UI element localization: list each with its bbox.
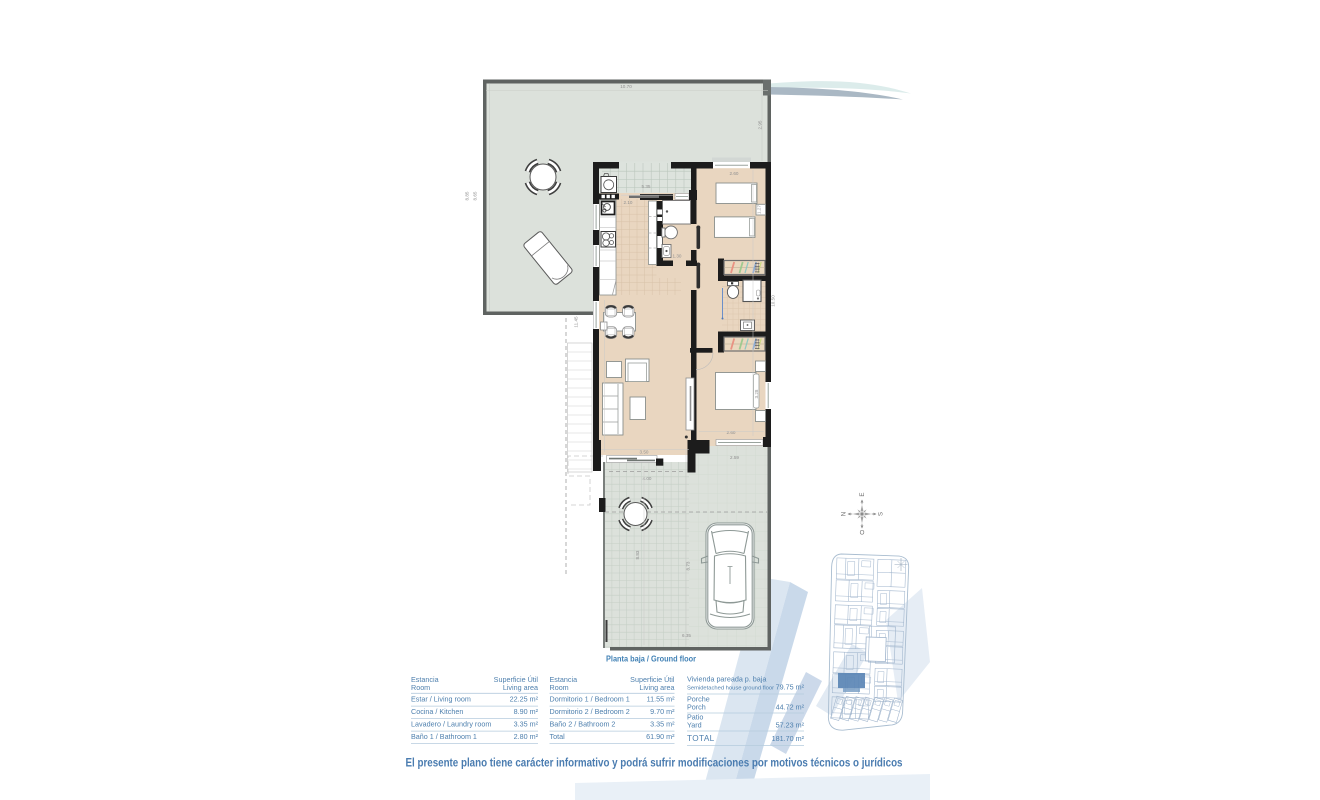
svg-text:8.90 m²: 8.90 m²: [514, 707, 539, 716]
svg-text:2.95: 2.95: [758, 120, 763, 129]
svg-text:181.70 m²: 181.70 m²: [772, 734, 805, 743]
svg-text:2.10: 2.10: [624, 200, 633, 205]
svg-text:8.83: 8.83: [635, 550, 640, 559]
svg-text:Dormitorio 2 / Bedroom 2: Dormitorio 2 / Bedroom 2: [550, 707, 630, 716]
svg-text:Living area: Living area: [503, 683, 538, 692]
svg-text:Vivienda pareada p. baja: Vivienda pareada p. baja: [687, 675, 766, 684]
svg-text:2.59: 2.59: [730, 455, 739, 460]
svg-text:22.25 m²: 22.25 m²: [510, 695, 539, 704]
svg-text:3.35 m²: 3.35 m²: [650, 720, 675, 729]
svg-text:57.23 m²: 57.23 m²: [776, 721, 805, 730]
svg-text:O: O: [860, 530, 865, 537]
svg-text:11.45: 11.45: [574, 316, 579, 328]
svg-text:2.60: 2.60: [730, 171, 739, 176]
svg-text:Lavadero / Laundry room: Lavadero / Laundry room: [411, 720, 491, 729]
svg-text:3.28: 3.28: [754, 389, 759, 398]
svg-text:Semidetached house ground floo: Semidetached house ground floor: [687, 686, 774, 692]
svg-text:Room: Room: [550, 683, 569, 692]
svg-text:Planta baja / Ground floor: Planta baja / Ground floor: [606, 654, 697, 664]
svg-text:Dormitorio 1 / Bedroom 1: Dormitorio 1 / Bedroom 1: [550, 695, 630, 704]
svg-text:44.72 m²: 44.72 m²: [776, 703, 805, 712]
svg-text:N: N: [841, 512, 848, 516]
svg-text:El presente plano tiene caráct: El presente plano tiene carácter informa…: [406, 756, 903, 770]
svg-text:5.35: 5.35: [642, 184, 651, 189]
svg-text:3.35 m²: 3.35 m²: [514, 720, 539, 729]
svg-text:Porch: Porch: [687, 703, 706, 712]
svg-text:8.85: 8.85: [465, 191, 470, 200]
svg-text:3.50: 3.50: [640, 450, 649, 455]
svg-text:10.70: 10.70: [620, 84, 632, 89]
svg-text:1.30: 1.30: [673, 254, 682, 259]
svg-text:E: E: [859, 492, 866, 496]
svg-text:Living area: Living area: [639, 683, 674, 692]
svg-text:Cocina / Kitchen: Cocina / Kitchen: [411, 707, 463, 716]
svg-text:10.50: 10.50: [771, 295, 776, 307]
svg-text:Estar / Living room: Estar / Living room: [411, 695, 471, 704]
svg-text:79.75 m²: 79.75 m²: [776, 683, 805, 692]
svg-text:Baño 2 / Bathroom 2: Baño 2 / Bathroom 2: [550, 720, 616, 729]
svg-text:11.55 m²: 11.55 m²: [647, 695, 675, 704]
svg-text:Baño 1 / Bathroom 1: Baño 1 / Bathroom 1: [411, 732, 477, 741]
svg-text:61.90 m²: 61.90 m²: [646, 732, 675, 741]
svg-text:Room: Room: [411, 683, 430, 692]
svg-text:TOTAL: TOTAL: [687, 734, 715, 743]
svg-text:2.80 m²: 2.80 m²: [514, 732, 539, 741]
svg-text:1.27: 1.27: [757, 205, 762, 214]
svg-text:8.65: 8.65: [473, 191, 478, 200]
svg-text:Yard: Yard: [687, 721, 702, 730]
svg-text:Total: Total: [550, 732, 566, 741]
svg-text:2.60: 2.60: [727, 430, 736, 435]
svg-text:9.70 m²: 9.70 m²: [650, 707, 675, 716]
svg-text:6.35: 6.35: [682, 633, 691, 638]
svg-text:S: S: [878, 512, 885, 516]
